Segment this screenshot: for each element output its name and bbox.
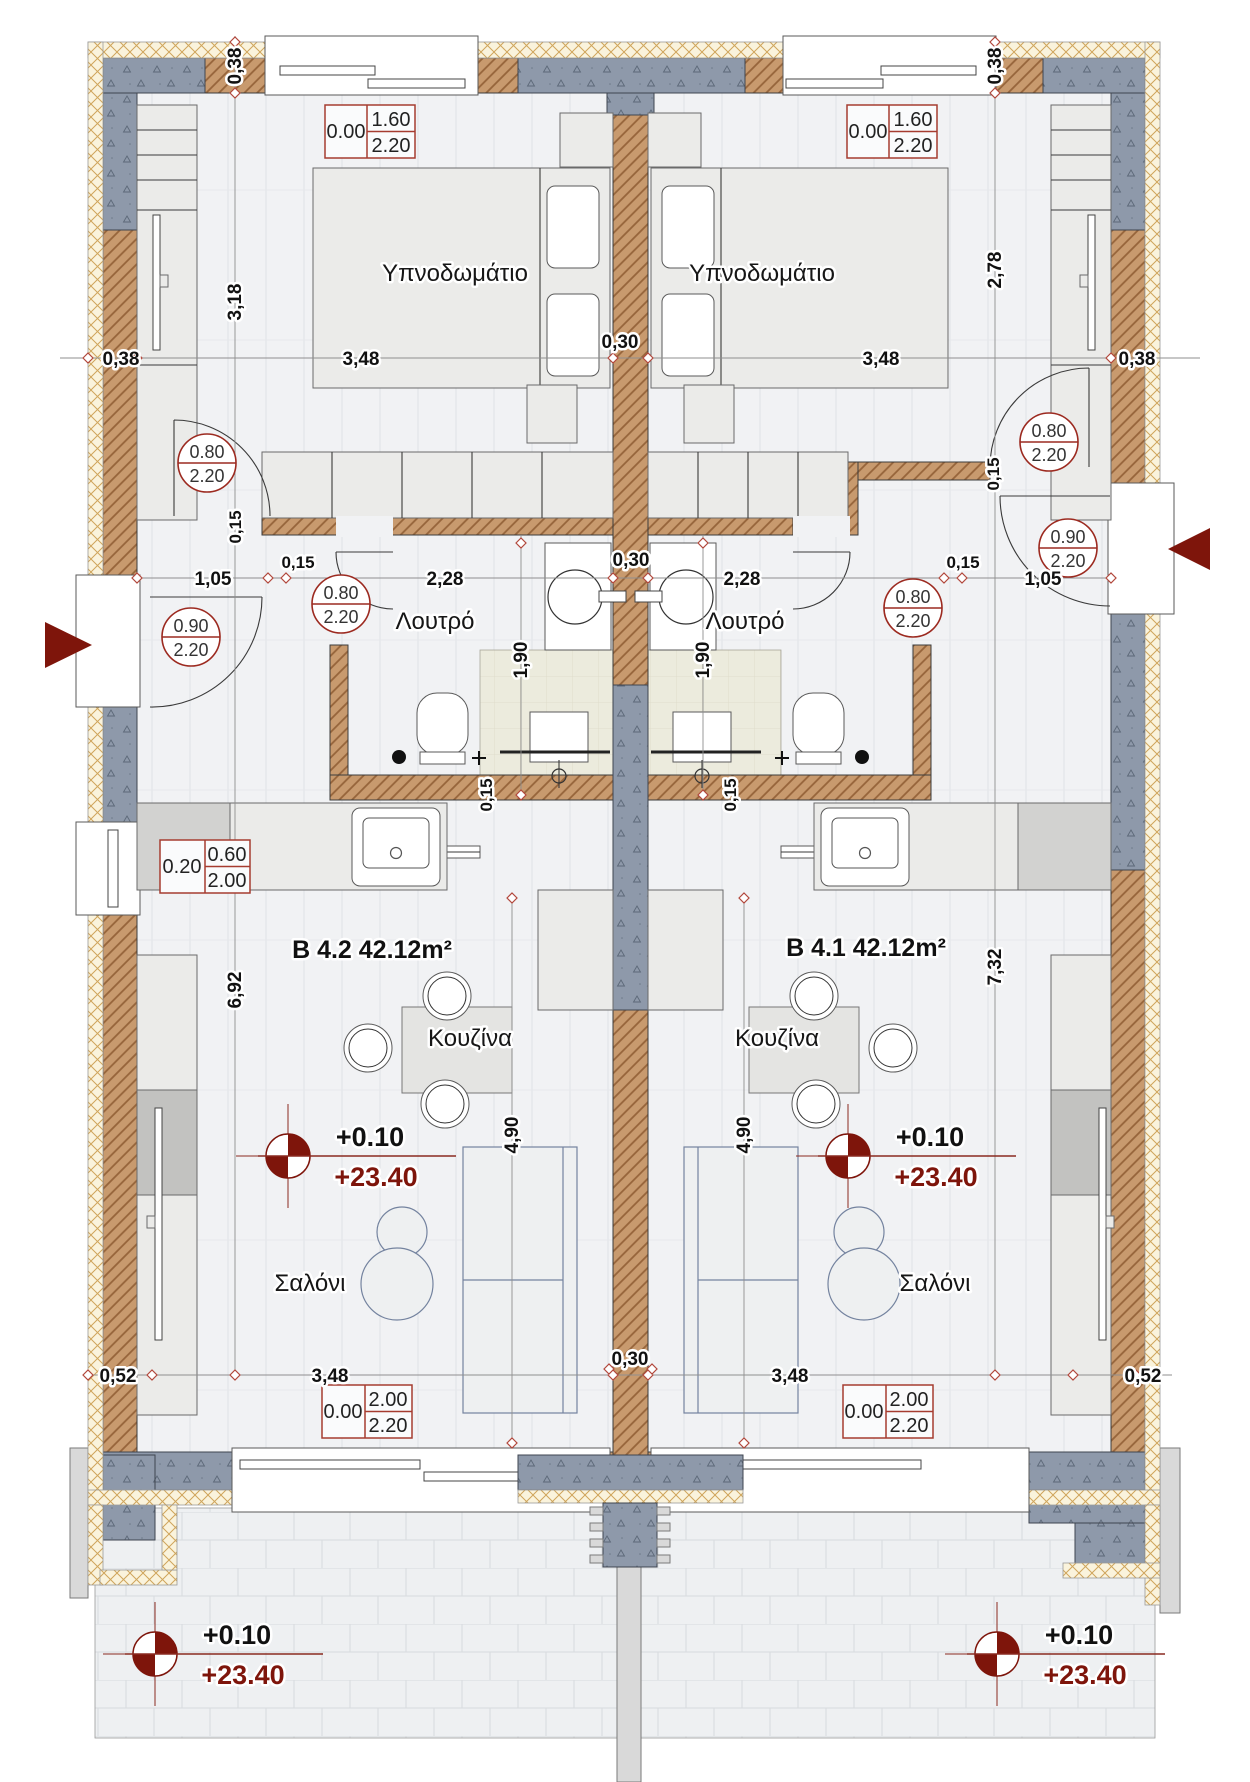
armchair-right-big <box>828 1248 900 1320</box>
basin-faucet-right <box>635 591 662 602</box>
dim-052-right: 0,52 <box>1125 1366 1162 1387</box>
window-top-left-sash-2 <box>368 79 465 88</box>
room-label-bath-left: Λουτρό <box>396 608 475 635</box>
window-side-width: 0.60 <box>208 844 247 866</box>
window-top-left-height: 2.20 <box>372 135 411 157</box>
dim-732: 7,32 <box>985 949 1006 986</box>
unit-label-b42: B 4.2 42.12m² <box>292 936 452 964</box>
toilet-left-base <box>420 752 465 764</box>
dim-038-vert-left: 0,38 <box>225 48 246 85</box>
wall-left-lower <box>103 915 137 1490</box>
dim-190-right: 1,90 <box>693 642 714 679</box>
dim-052-left: 0,52 <box>100 1366 137 1387</box>
window-side-height: 2.00 <box>208 870 247 892</box>
schedule-window-bottom-right: 0.00 2.00 2.20 <box>843 1385 933 1438</box>
svg-text:0.80: 0.80 <box>189 442 224 462</box>
dim-030-top: 0,30 <box>602 332 639 353</box>
insulation-bottom-left <box>88 1490 232 1505</box>
window-bottom-right-sash-2 <box>741 1460 921 1469</box>
insulation-balcony-left-c <box>162 1505 177 1570</box>
window-bottom-left-height: 2.20 <box>369 1415 408 1437</box>
concrete-right-mid <box>1111 607 1145 870</box>
pillow-right-2 <box>662 294 714 376</box>
door-tag-bath-right: 0.80 2.20 <box>884 579 942 637</box>
window-top-right-sill: 0.00 <box>849 121 888 143</box>
basin-faucet-left <box>599 591 626 602</box>
room-label-bath-right: Λουτρό <box>706 608 785 635</box>
tv-bracket-living-left <box>147 1216 155 1228</box>
toilet-right-base <box>796 752 841 764</box>
window-top-right-width: 1.60 <box>894 109 933 131</box>
window-top-right-sash-2 <box>881 66 976 75</box>
doorway-gap-bath-left <box>336 516 393 537</box>
window-bottom-left-sash-2 <box>424 1472 520 1481</box>
door-tag-bedroom-left: 0.80 2.20 <box>178 434 236 492</box>
room-label-living-left: Σαλόνι <box>274 1270 345 1297</box>
svg-text:2.20: 2.20 <box>323 607 358 627</box>
schedule-window-bottom-left: 0.00 2.00 2.20 <box>322 1385 412 1438</box>
window-bottom-left-sash-1 <box>240 1460 420 1469</box>
floor-plan-drawing: 0.00 1.60 2.20 0.00 1.60 2.20 0.20 0.60 … <box>0 0 1250 1782</box>
pillow-left-1 <box>547 186 599 268</box>
concrete-central-segment <box>613 685 648 1010</box>
wall-bath-kitchen-left <box>330 775 613 800</box>
schedule-window-side-left: 0.20 0.60 2.00 <box>160 840 250 893</box>
dim-348-top-left: 3,48 <box>343 349 380 370</box>
window-top-right-height: 2.20 <box>894 135 933 157</box>
concrete-top-right <box>1043 58 1145 93</box>
kitchen-return-right <box>648 890 723 1010</box>
tv-bracket-bedroom-left <box>160 275 168 287</box>
concrete-right-column <box>1111 93 1145 230</box>
insulation-bottom-right <box>1029 1490 1160 1505</box>
svg-text:+0.10: +0.10 <box>336 1122 404 1152</box>
balcony-side-band-right <box>1160 1448 1180 1613</box>
pillow-right-1 <box>662 186 714 268</box>
svg-text:+0.10: +0.10 <box>896 1122 964 1152</box>
wall-bed-bath-right-a <box>648 518 793 535</box>
divider-path-stem <box>617 1567 641 1782</box>
svg-text:2.20: 2.20 <box>189 466 224 486</box>
dim-228-left: 2,28 <box>427 569 464 590</box>
closet-row-left <box>262 452 613 518</box>
shower-tray-left <box>530 712 588 762</box>
window-side-left-sash <box>108 830 118 907</box>
svg-text:0.90: 0.90 <box>173 616 208 636</box>
svg-text:2.20: 2.20 <box>173 640 208 660</box>
toilet-right <box>793 693 844 755</box>
nightstand-right-1 <box>648 113 701 167</box>
window-top-left-sash-1 <box>280 66 375 75</box>
door-tag-bath-left: 0.80 2.20 <box>312 575 370 633</box>
svg-text:+0.10: +0.10 <box>203 1620 271 1650</box>
nightstand-left-2 <box>527 385 577 443</box>
insulation-balcony-right-b <box>1063 1563 1160 1578</box>
svg-text:2.20: 2.20 <box>1050 551 1085 571</box>
dim-490-left: 4,90 <box>502 1117 523 1154</box>
dim-105-left: 1,05 <box>195 569 232 590</box>
svg-text:2.20: 2.20 <box>1031 445 1066 465</box>
nightstand-right-2 <box>684 385 734 443</box>
tv-panel-living-left <box>155 1108 162 1340</box>
dim-490-right: 4,90 <box>734 1117 755 1154</box>
wall-bath-kitchen-right <box>648 775 931 800</box>
doorway-gap-bath-right <box>793 516 850 537</box>
dim-038-top-left: 0,38 <box>103 349 140 370</box>
tv-panel-living-right <box>1099 1108 1106 1340</box>
divider-concrete-stem <box>603 1503 657 1567</box>
dim-015-left: 0,15 <box>281 553 314 572</box>
entry-left-recess <box>76 575 140 707</box>
dim-015-corridor-right: 0,15 <box>984 457 1003 490</box>
pillow-left-2 <box>547 294 599 376</box>
dim-038-top-right: 0,38 <box>1119 349 1156 370</box>
svg-text:+23.40: +23.40 <box>334 1162 417 1192</box>
dim-348-bottom-left: 3,48 <box>312 1366 349 1387</box>
divider-concrete-band <box>518 1455 743 1490</box>
insulation-left <box>88 42 103 1505</box>
dim-015-right: 0,15 <box>946 553 979 572</box>
room-label-living-right: Σαλόνι <box>899 1270 970 1297</box>
concrete-top-center-stem <box>607 93 654 115</box>
dim-015-corridor-left: 0,15 <box>226 510 245 543</box>
balcony-side-band-left <box>70 1448 88 1598</box>
window-side-sill: 0.20 <box>163 856 202 878</box>
kitchen-appliance-right <box>1018 803 1111 890</box>
schedule-window-top-left: 0.00 1.60 2.20 <box>325 105 415 158</box>
insulation-balcony-left-b <box>100 1570 177 1585</box>
unit-label-b41: B 4.1 42.12m² <box>786 934 946 962</box>
window-bottom-left-sill: 0.00 <box>324 1401 363 1423</box>
dim-348-top-right: 3,48 <box>863 349 900 370</box>
concrete-left-column <box>103 93 137 230</box>
window-bottom-right-width: 2.00 <box>890 1389 929 1411</box>
dim-038-vert-right: 0,38 <box>985 48 1006 85</box>
svg-text:0.90: 0.90 <box>1050 527 1085 547</box>
window-bottom-left-width: 2.00 <box>369 1389 408 1411</box>
dim-105-right: 1,05 <box>1025 569 1062 590</box>
insulation-right <box>1145 42 1160 1505</box>
nightstand-left-1 <box>560 113 613 167</box>
dim-190-left: 1,90 <box>511 642 532 679</box>
svg-text:0.80: 0.80 <box>895 587 930 607</box>
dim-015-shower-right: 0,15 <box>721 778 740 811</box>
toilet-left <box>417 693 468 755</box>
svg-text:2.20: 2.20 <box>895 611 930 631</box>
insulation-balcony-right-a <box>1145 1505 1160 1605</box>
tv-bracket-bedroom-right <box>1080 275 1088 287</box>
window-top-right-sash-1 <box>786 79 883 88</box>
tv-panel-bedroom-right <box>1088 215 1095 350</box>
room-label-kitchen-right: Κουζίνα <box>735 1025 819 1052</box>
svg-text:+23.40: +23.40 <box>894 1162 977 1192</box>
room-label-kitchen-left: Κουζίνα <box>428 1025 512 1052</box>
tv-bracket-living-right <box>1106 1216 1114 1228</box>
dim-278: 2,78 <box>985 252 1006 289</box>
svg-text:+23.40: +23.40 <box>1043 1660 1126 1690</box>
dim-030-balcony: 0,30 <box>612 1349 649 1370</box>
dim-015-shower-left: 0,15 <box>477 778 496 811</box>
room-label-bedroom-left: Υπνοδωμάτιο <box>382 260 528 287</box>
dim-030-mid: 0,30 <box>613 550 650 571</box>
window-bottom-right-height: 2.20 <box>890 1415 929 1437</box>
schedule-window-top-right: 0.00 1.60 2.20 <box>847 105 937 158</box>
wall-bed-bath-left <box>262 518 613 535</box>
tv-panel-bedroom-left <box>153 215 160 350</box>
divider-insulation <box>518 1490 743 1503</box>
entry-right-recess <box>1108 483 1174 614</box>
concrete-bottom-right <box>1029 1452 1145 1490</box>
tv-cabinet-left-dark <box>137 1090 197 1195</box>
shower-tray-right <box>673 712 731 762</box>
dim-318: 3,18 <box>225 284 246 321</box>
drain-right <box>855 750 869 764</box>
dim-228-right: 2,28 <box>724 569 761 590</box>
svg-text:0.80: 0.80 <box>1031 421 1066 441</box>
floor-plan-canvas: 0.00 1.60 2.20 0.00 1.60 2.20 0.20 0.60 … <box>0 0 1250 1782</box>
svg-text:0.80: 0.80 <box>323 583 358 603</box>
window-top-left-width: 1.60 <box>372 109 411 131</box>
concrete-top-center <box>518 58 745 93</box>
door-tag-entry-left: 0.90 2.20 <box>162 608 220 666</box>
room-label-bedroom-right: Υπνοδωμάτιο <box>689 260 835 287</box>
kitchen-return-left <box>538 890 613 1010</box>
armchair-left-big <box>361 1248 433 1320</box>
concrete-top-left <box>103 58 205 93</box>
dim-348-bottom-right: 3,48 <box>772 1366 809 1387</box>
svg-text:+0.10: +0.10 <box>1045 1620 1113 1650</box>
wall-corridor-right-a <box>858 462 990 480</box>
svg-text:+23.40: +23.40 <box>201 1660 284 1690</box>
dim-692: 6,92 <box>225 972 246 1009</box>
window-bottom-right-sill: 0.00 <box>845 1401 884 1423</box>
drain-left <box>392 750 406 764</box>
window-top-left-sill: 0.00 <box>327 121 366 143</box>
door-tag-bedroom-right: 0.80 2.20 <box>1020 413 1078 471</box>
concrete-balcony-right-b <box>1075 1523 1145 1565</box>
